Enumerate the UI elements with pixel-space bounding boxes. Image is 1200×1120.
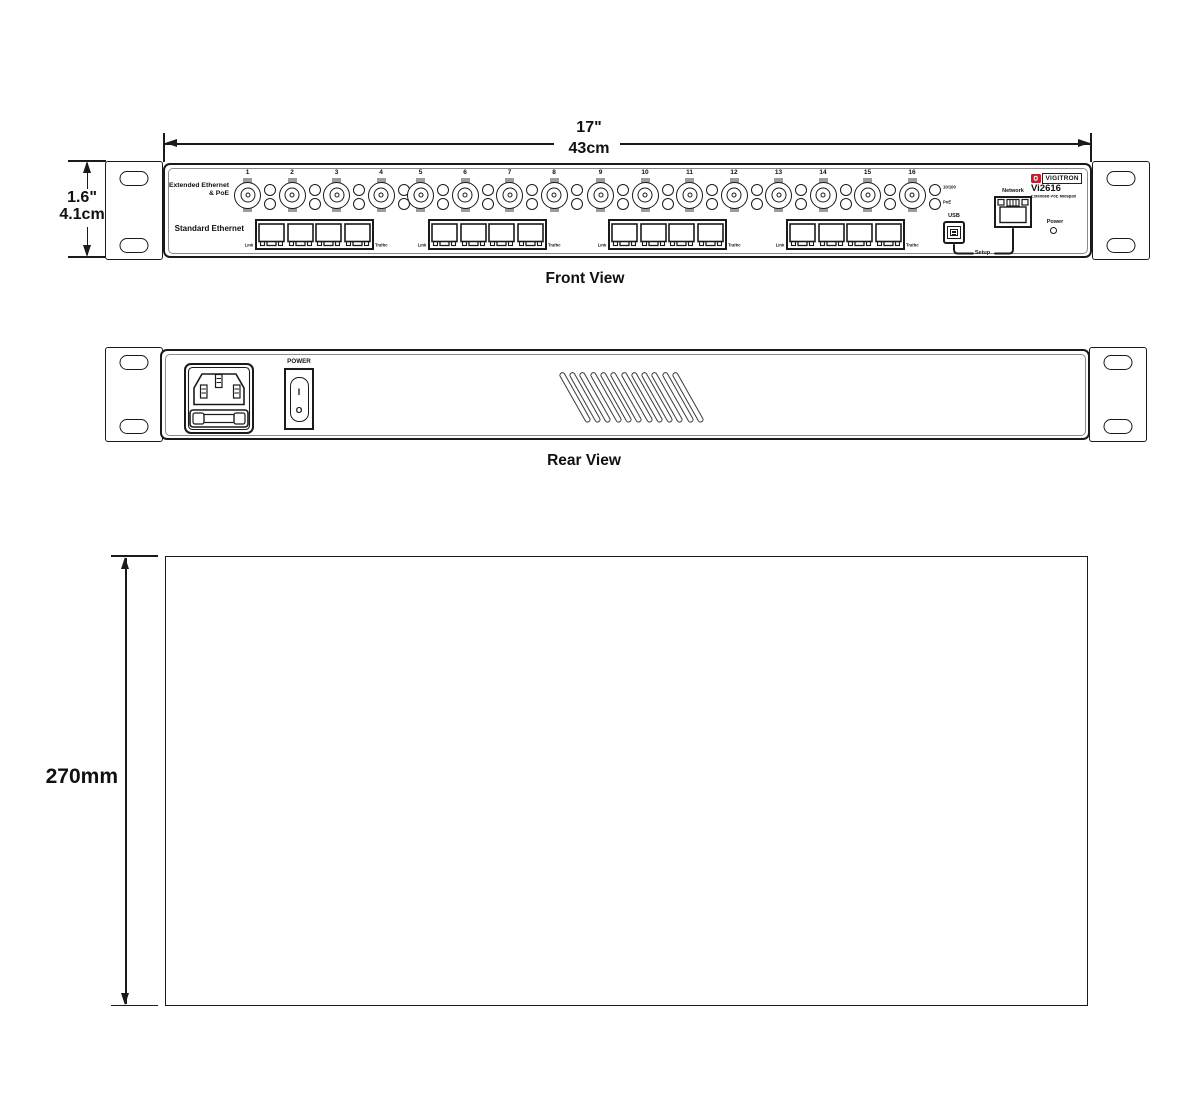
rj45-jack bbox=[315, 223, 342, 249]
network-label: Network bbox=[996, 188, 1031, 194]
traffic-label: Traffic bbox=[548, 243, 561, 247]
mounting-hole bbox=[120, 238, 149, 253]
width-dim-line-b bbox=[620, 143, 1090, 145]
rj45-jack bbox=[668, 223, 695, 249]
rj45-jack bbox=[344, 223, 371, 249]
rj45-jack bbox=[460, 223, 487, 249]
power-led bbox=[1050, 227, 1058, 235]
rj45-jack bbox=[789, 223, 816, 249]
usb-label: USB bbox=[944, 213, 964, 219]
width-dim-arrow-right bbox=[1078, 139, 1090, 147]
height-dim-arrow-up bbox=[83, 161, 91, 173]
width-dim-cm: 43cm bbox=[531, 140, 647, 158]
front-left-rack-ear bbox=[105, 161, 163, 260]
mounting-hole bbox=[1104, 355, 1133, 370]
rj45-jack bbox=[875, 223, 902, 249]
width-dim-inches: 17" bbox=[531, 119, 647, 137]
rj45-jack bbox=[258, 223, 285, 249]
model-number: Vi2616 bbox=[1031, 184, 1141, 195]
depth-dim-arrow-up bbox=[121, 557, 129, 569]
model-subtitle: Extended PoE Midspan bbox=[1031, 195, 1106, 199]
link-label: Link bbox=[775, 243, 784, 247]
ethernet-group-4: LinkTraffic bbox=[786, 219, 905, 250]
width-dim-line-a bbox=[165, 143, 554, 145]
rj45-jack bbox=[846, 223, 873, 249]
ethernet-group-3: LinkTraffic bbox=[608, 219, 727, 250]
rj45-jack bbox=[431, 223, 458, 249]
vigitron-logo: VIGITRON Vi2616 Extended PoE Midspan bbox=[1031, 173, 1141, 201]
rj45-jack bbox=[287, 223, 314, 249]
mounting-hole bbox=[120, 171, 149, 186]
width-dim-extension-right bbox=[1090, 133, 1092, 162]
link-label: Link bbox=[417, 243, 426, 247]
top-view-outline bbox=[165, 556, 1088, 1006]
rear-panel: POWER I O bbox=[160, 349, 1090, 440]
depth-dim-tick-bottom bbox=[111, 1005, 158, 1007]
link-label: Link bbox=[597, 243, 606, 247]
vigitron-logo-icon bbox=[1031, 174, 1041, 184]
depth-dim-tick-top bbox=[111, 555, 158, 557]
mounting-hole bbox=[120, 419, 149, 434]
rj45-jack bbox=[488, 223, 515, 249]
width-dim-arrow-left bbox=[165, 139, 177, 147]
vent-slots bbox=[162, 351, 1088, 438]
width-dim-extension-left bbox=[163, 133, 165, 162]
link-label: Link bbox=[244, 243, 253, 247]
diagram-canvas: 17" 43cm 1.6" 4.1cm Extended Ethernet & … bbox=[0, 0, 1200, 1120]
mounting-hole bbox=[1107, 238, 1136, 253]
ethernet-group-2: LinkTraffic bbox=[428, 219, 547, 250]
rj45-jack bbox=[517, 223, 544, 249]
setup-label: Setup bbox=[968, 250, 997, 256]
rear-left-rack-ear bbox=[105, 347, 163, 442]
traffic-label: Traffic bbox=[906, 243, 919, 247]
rear-right-rack-ear bbox=[1089, 347, 1147, 442]
power-label: Power bbox=[1041, 219, 1069, 225]
mounting-hole bbox=[1104, 419, 1133, 434]
front-view-caption: Front View bbox=[485, 270, 685, 288]
network-port bbox=[994, 196, 1032, 228]
ethernet-group-1: LinkTraffic bbox=[255, 219, 374, 250]
traffic-label: Traffic bbox=[728, 243, 741, 247]
vigitron-brand: VIGITRON bbox=[1042, 173, 1082, 184]
rj45-jack bbox=[697, 223, 724, 249]
depth-dim-arrow-down bbox=[121, 993, 129, 1005]
depth-dim-line bbox=[125, 558, 127, 1004]
front-panel: Extended Ethernet & PoE Standard Etherne… bbox=[163, 163, 1092, 258]
rj45-jack bbox=[640, 223, 667, 249]
depth-dim-label: 270mm bbox=[30, 765, 118, 789]
rear-view-caption: Rear View bbox=[484, 452, 684, 470]
mounting-hole bbox=[120, 355, 149, 370]
traffic-label: Traffic bbox=[375, 243, 388, 247]
height-dim-arrow-down bbox=[83, 245, 91, 257]
rj45-jack bbox=[818, 223, 845, 249]
rj45-jack bbox=[611, 223, 638, 249]
